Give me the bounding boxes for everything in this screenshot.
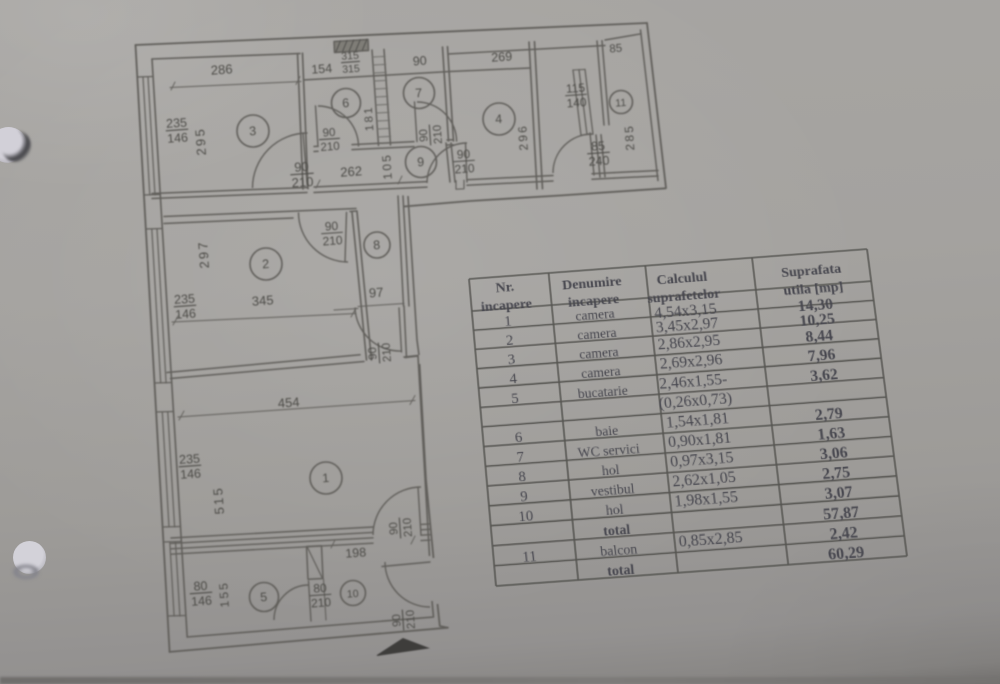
svg-text:8,44: 8,44 (805, 328, 835, 346)
svg-text:115: 115 (565, 81, 585, 96)
svg-text:4: 4 (495, 112, 503, 126)
svg-text:WC servici: WC servici (577, 440, 641, 460)
svg-text:90: 90 (412, 54, 427, 69)
svg-text:vestibul: vestibul (590, 480, 636, 499)
svg-text:210: 210 (322, 233, 343, 248)
svg-text:210: 210 (291, 174, 314, 190)
svg-text:97: 97 (368, 285, 383, 301)
svg-text:80: 80 (193, 579, 208, 594)
svg-text:210: 210 (432, 124, 445, 144)
svg-text:90: 90 (322, 127, 336, 140)
svg-text:285: 285 (622, 124, 638, 152)
svg-text:286: 286 (210, 61, 233, 77)
svg-text:90: 90 (456, 147, 471, 162)
svg-text:297: 297 (195, 240, 212, 269)
svg-text:80: 80 (313, 581, 328, 596)
svg-text:181: 181 (363, 105, 377, 132)
svg-text:146: 146 (180, 466, 202, 481)
svg-text:90: 90 (418, 129, 431, 143)
svg-text:85: 85 (609, 43, 623, 56)
svg-text:hol: hol (601, 462, 620, 479)
svg-text:1,63: 1,63 (817, 425, 847, 444)
svg-text:total: total (602, 521, 631, 539)
svg-text:8: 8 (373, 238, 381, 252)
svg-text:155: 155 (216, 581, 232, 609)
svg-text:7: 7 (415, 86, 423, 100)
svg-text:camera: camera (575, 305, 616, 323)
svg-text:1: 1 (322, 471, 330, 485)
svg-text:1: 1 (504, 313, 513, 330)
svg-text:baie: baie (594, 422, 619, 439)
svg-text:bucatarie: bucatarie (577, 382, 629, 401)
svg-text:90: 90 (367, 347, 380, 361)
svg-text:210: 210 (320, 141, 340, 154)
svg-text:262: 262 (340, 163, 363, 179)
svg-text:Nr.: Nr. (495, 279, 515, 295)
svg-text:210: 210 (454, 161, 475, 176)
svg-text:140: 140 (566, 95, 587, 110)
svg-text:8: 8 (518, 469, 527, 486)
svg-text:90: 90 (294, 159, 309, 175)
svg-text:90: 90 (388, 522, 401, 536)
svg-text:11: 11 (615, 97, 627, 110)
svg-text:9: 9 (520, 488, 529, 505)
svg-text:60,29: 60,29 (827, 544, 865, 564)
svg-text:2,75: 2,75 (821, 465, 851, 484)
svg-text:210: 210 (405, 609, 418, 629)
svg-text:11: 11 (522, 548, 538, 566)
svg-text:Calculul: Calculul (656, 268, 708, 287)
svg-text:315: 315 (341, 50, 359, 63)
svg-text:105: 105 (379, 153, 395, 181)
svg-text:balcon: balcon (599, 541, 638, 560)
svg-text:camera: camera (580, 363, 621, 381)
svg-text:515: 515 (210, 486, 227, 515)
svg-text:5: 5 (511, 390, 520, 407)
svg-text:235: 235 (174, 292, 196, 307)
svg-text:2,42: 2,42 (829, 524, 859, 543)
svg-text:2,79: 2,79 (814, 405, 844, 424)
svg-text:345: 345 (251, 292, 274, 308)
svg-text:2: 2 (505, 332, 514, 349)
svg-text:camera: camera (578, 344, 619, 362)
svg-text:2: 2 (262, 257, 270, 271)
svg-text:146: 146 (191, 593, 213, 608)
svg-text:6: 6 (342, 96, 350, 110)
svg-text:3: 3 (249, 124, 257, 138)
svg-text:454: 454 (277, 394, 300, 410)
svg-text:57,87: 57,87 (822, 504, 860, 524)
svg-text:7: 7 (516, 449, 525, 466)
svg-text:240: 240 (588, 153, 610, 168)
svg-text:hol: hol (605, 501, 625, 518)
svg-text:85: 85 (591, 139, 606, 154)
svg-text:3,62: 3,62 (809, 367, 839, 385)
svg-text:198: 198 (345, 545, 367, 560)
svg-text:295: 295 (192, 127, 209, 156)
svg-text:utila [mp]: utila [mp] (783, 278, 845, 298)
svg-text:235: 235 (166, 116, 188, 131)
svg-text:146: 146 (167, 130, 189, 145)
svg-text:Denumire: Denumire (561, 273, 622, 293)
svg-text:210: 210 (311, 595, 332, 610)
svg-text:10: 10 (518, 508, 534, 526)
svg-text:146: 146 (175, 306, 197, 321)
svg-text:210: 210 (381, 342, 394, 362)
svg-text:9: 9 (417, 155, 425, 169)
svg-text:90: 90 (391, 614, 404, 628)
svg-text:3,07: 3,07 (824, 484, 854, 503)
svg-text:296: 296 (515, 124, 531, 152)
svg-text:5: 5 (260, 590, 268, 604)
svg-text:269: 269 (491, 49, 513, 64)
svg-text:235: 235 (179, 452, 201, 467)
svg-text:3,06: 3,06 (819, 445, 849, 464)
svg-text:3: 3 (507, 351, 516, 368)
svg-text:Suprafata: Suprafata (780, 261, 842, 281)
svg-text:4: 4 (509, 371, 518, 388)
svg-text:90: 90 (324, 219, 339, 234)
svg-text:210: 210 (402, 517, 415, 537)
svg-text:incapere: incapere (480, 295, 532, 314)
svg-text:10: 10 (347, 588, 360, 601)
svg-text:6: 6 (514, 429, 523, 446)
svg-text:315: 315 (342, 63, 360, 76)
svg-text:total: total (606, 561, 635, 579)
svg-text:154: 154 (311, 61, 333, 76)
svg-text:7,96: 7,96 (807, 347, 837, 365)
svg-text:camera: camera (577, 325, 618, 343)
